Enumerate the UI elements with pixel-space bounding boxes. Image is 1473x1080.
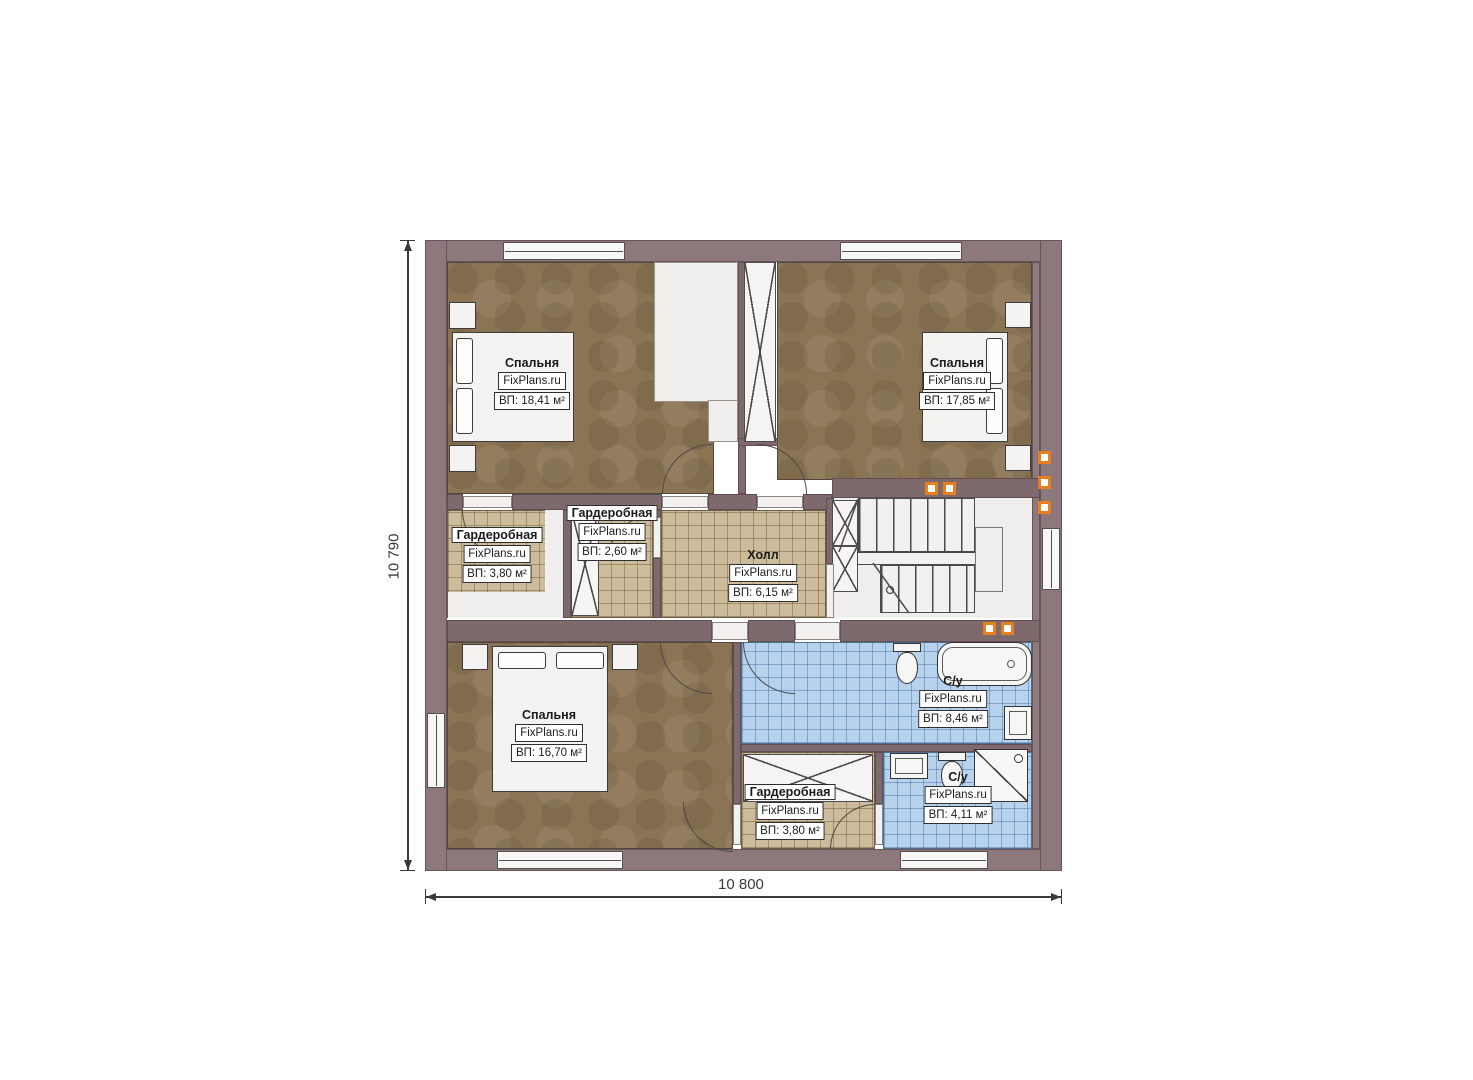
- wall-segment: [447, 620, 712, 642]
- orange-marker-icon: [1001, 622, 1014, 635]
- orange-marker-icon: [925, 482, 938, 495]
- room-label-bedroom-top-right: Спальня FixPlans.ru ВП: 17,85 м²: [919, 356, 995, 410]
- room-name: Гардеробная: [452, 527, 543, 543]
- vent-shaft-icon: [744, 262, 776, 442]
- room-label-wardrobe-left: Гардеробная FixPlans.ru ВП: 3,80 м²: [452, 527, 543, 583]
- room-name: Гардеробная: [745, 784, 836, 800]
- pillow-icon: [456, 388, 473, 434]
- room-name: С/у: [943, 674, 962, 688]
- dimension-line-bottom: [425, 896, 1062, 898]
- wall-segment: [875, 752, 883, 804]
- room-label-bathroom-top: С/у FixPlans.ru ВП: 8,46 м²: [918, 674, 988, 728]
- wall-segment: [653, 558, 661, 618]
- room-brand: FixPlans.ru: [923, 372, 991, 390]
- room-area: ВП: 3,80 м²: [755, 822, 825, 840]
- nightstand-icon: [1005, 445, 1031, 471]
- closet-niche-floor: [708, 400, 738, 442]
- room-name: Холл: [747, 548, 778, 562]
- room-area: ВП: 17,85 м²: [919, 392, 995, 410]
- sink-icon: [1004, 706, 1032, 740]
- room-name: Гардеробная: [567, 505, 658, 521]
- closet-niche-floor: [654, 262, 738, 402]
- dimension-tick: [1061, 889, 1062, 904]
- room-brand: FixPlans.ru: [924, 786, 992, 804]
- room-brand: FixPlans.ru: [756, 802, 824, 820]
- room-area: ВП: 3,80 м²: [462, 565, 532, 583]
- door-threshold: [662, 496, 708, 508]
- dimension-height-label: 10 790: [385, 534, 402, 580]
- window-icon: [503, 242, 625, 260]
- room-area: ВП: 2,60 м²: [577, 543, 647, 561]
- wall-segment: [748, 620, 795, 642]
- floor-plan: Спальня FixPlans.ru ВП: 18,41 м² Спальня…: [0, 0, 1473, 1080]
- dimension-arrow: [404, 241, 412, 251]
- nightstand-icon: [462, 644, 488, 670]
- nightstand-icon: [449, 302, 476, 329]
- pillow-icon: [456, 338, 473, 384]
- room-brand: FixPlans.ru: [919, 690, 987, 708]
- nightstand-icon: [1005, 302, 1031, 328]
- dimension-tick: [400, 870, 415, 871]
- room-label-wardrobe-middle: Гардеробная FixPlans.ru ВП: 2,60 м²: [567, 505, 658, 561]
- window-icon: [1042, 528, 1060, 590]
- room-brand: FixPlans.ru: [515, 724, 583, 742]
- toilet-icon: [938, 752, 966, 761]
- room-name: Спальня: [522, 708, 576, 722]
- room-brand: FixPlans.ru: [729, 564, 797, 582]
- stair-direction-arrow: [832, 495, 1042, 620]
- wall-segment: [733, 642, 741, 804]
- wardrobe-left-white-strip: [545, 510, 563, 618]
- door-threshold: [712, 622, 748, 640]
- dimension-arrow: [1051, 893, 1061, 901]
- orange-marker-icon: [943, 482, 956, 495]
- room-area: ВП: 18,41 м²: [494, 392, 570, 410]
- room-area: ВП: 8,46 м²: [918, 710, 988, 728]
- room-name: С/у: [948, 770, 967, 784]
- window-icon: [900, 851, 988, 869]
- window-icon: [427, 713, 445, 788]
- room-brand: FixPlans.ru: [578, 523, 646, 541]
- nightstand-icon: [612, 644, 638, 670]
- door-threshold: [795, 622, 840, 640]
- room-label-wardrobe-bottom: Гардеробная FixPlans.ru ВП: 3,80 м²: [745, 784, 836, 840]
- wall-segment: [447, 494, 463, 510]
- room-label-bedroom-bottom: Спальня FixPlans.ru ВП: 16,70 м²: [511, 708, 587, 762]
- toilet-icon: [893, 643, 921, 652]
- orange-marker-icon: [983, 622, 996, 635]
- room-name: Спальня: [505, 356, 559, 370]
- dimension-line-left: [407, 240, 409, 871]
- pillow-icon: [556, 652, 604, 669]
- door-threshold: [463, 496, 512, 508]
- dimension-arrow: [426, 893, 436, 901]
- nightstand-icon: [449, 445, 476, 472]
- orange-marker-icon: [1038, 501, 1051, 514]
- window-icon: [497, 851, 623, 869]
- room-label-bedroom-top-left: Спальня FixPlans.ru ВП: 18,41 м²: [494, 356, 570, 410]
- pillow-icon: [498, 652, 546, 669]
- room-brand: FixPlans.ru: [498, 372, 566, 390]
- door-threshold: [757, 496, 803, 508]
- room-area: ВП: 4,11 м²: [924, 806, 993, 824]
- dimension-width-label: 10 800: [718, 876, 764, 893]
- wardrobe-left-white-strip: [448, 592, 546, 618]
- dimension-arrow: [404, 860, 412, 870]
- door-threshold: [733, 804, 741, 845]
- room-brand: FixPlans.ru: [463, 545, 531, 563]
- room-area: ВП: 6,15 м²: [728, 584, 798, 602]
- room-label-hall: Холл FixPlans.ru ВП: 6,15 м²: [728, 548, 798, 602]
- toilet-icon: [896, 652, 918, 684]
- sink-icon: [890, 753, 928, 779]
- room-area: ВП: 16,70 м²: [511, 744, 587, 762]
- window-icon: [840, 242, 962, 260]
- room-name: Спальня: [930, 356, 984, 370]
- orange-marker-icon: [1038, 476, 1051, 489]
- orange-marker-icon: [1038, 451, 1051, 464]
- room-label-bathroom-bottom: С/у FixPlans.ru ВП: 4,11 м²: [924, 770, 993, 824]
- door-threshold: [875, 804, 883, 845]
- wall-segment: [708, 494, 757, 510]
